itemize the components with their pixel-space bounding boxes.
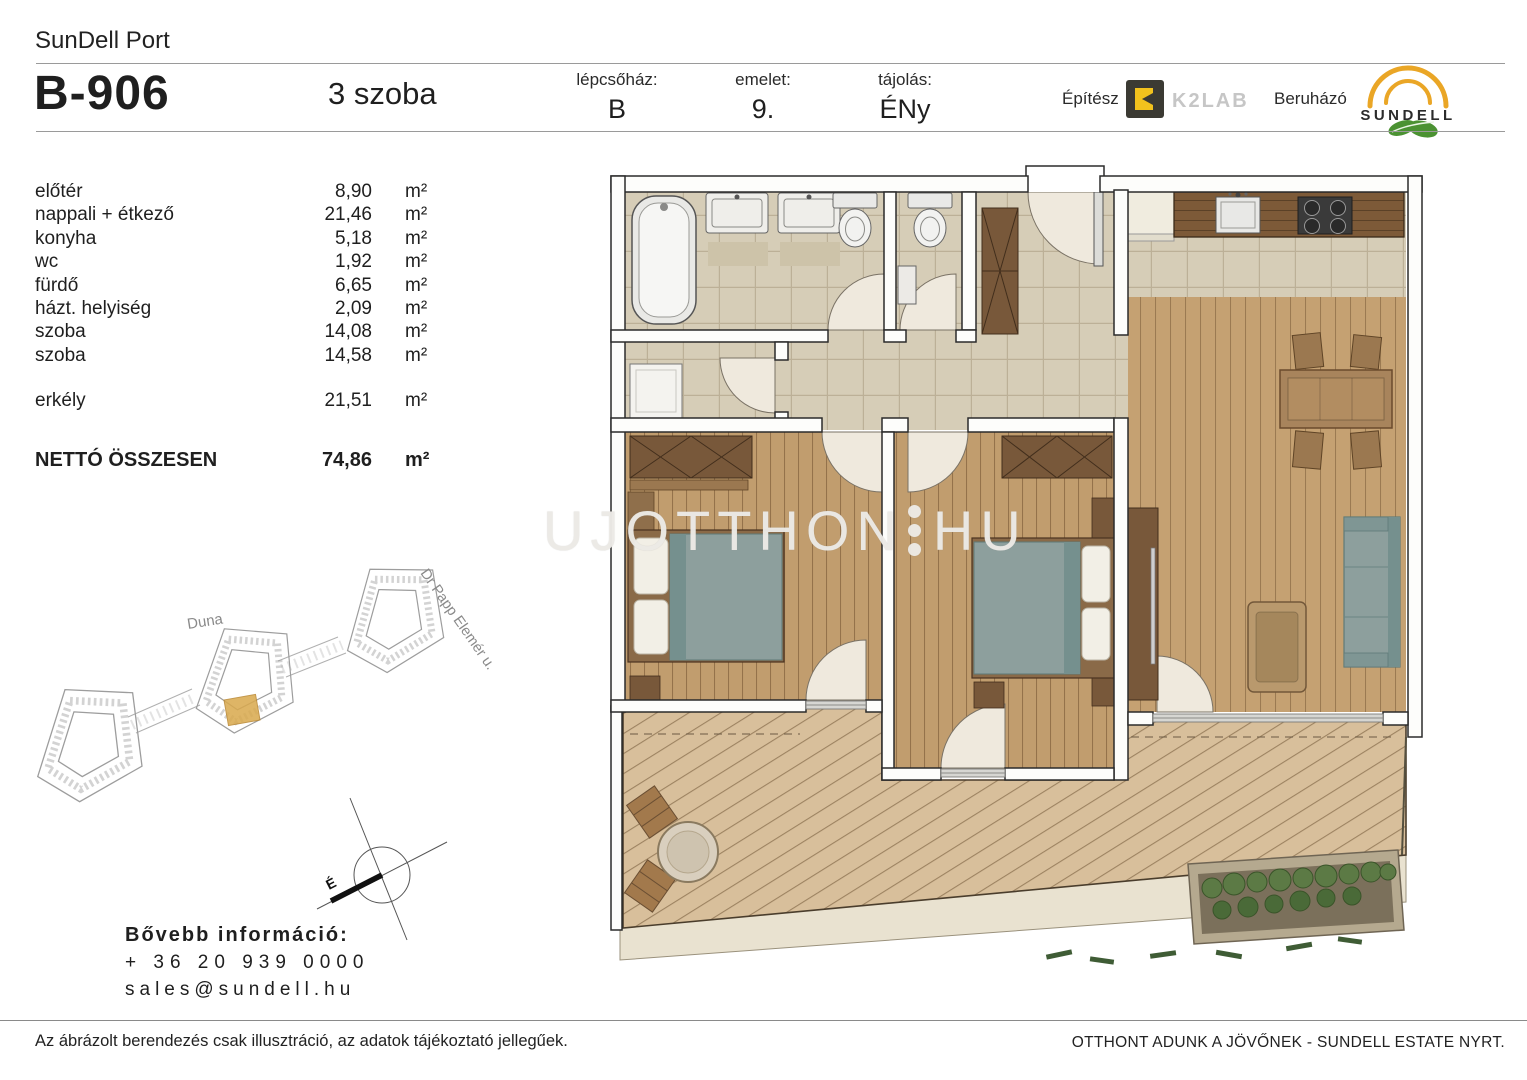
kitchen-counter [1174,192,1404,237]
kitchen-knob [1228,192,1231,195]
wall [884,192,896,330]
burner [1331,201,1346,216]
balcony-table-top [667,831,709,873]
bed-blanket-fold [670,534,686,660]
contact-title: Bővebb információ: [125,922,369,949]
flyer-page: SunDell Port B-906 3 szoba lépcsőház: B … [0,0,1527,1080]
sofa-armrest [1344,517,1388,531]
wall [611,700,806,712]
wall [611,176,625,712]
bathtub-inner [639,203,689,317]
wall [611,330,828,342]
wall [882,432,894,780]
wall [882,768,941,780]
sink-faucet [735,195,740,200]
wall [611,176,1028,192]
pillow [634,538,668,594]
wall [1408,176,1422,737]
wall [882,418,908,432]
entry-wardrobe [982,208,1018,334]
dining-chair [1292,333,1323,370]
entrance-alcove [1026,166,1104,192]
dining-chair [1350,431,1381,469]
entrance-door-leaf [1094,192,1103,266]
footer-slogan: OTTHONT ADUNK A JÖVŐNEK - SUNDELL ESTATE… [1072,1034,1505,1052]
burner [1305,219,1320,234]
sink-faucet [807,195,812,200]
bath-mat [780,242,840,266]
bath-mat [708,242,768,266]
wall [962,192,976,330]
pillow [1082,608,1110,660]
wall [775,342,788,360]
wall [866,700,882,712]
sofa-back [1388,517,1400,667]
wall [611,706,622,930]
sofa-armrest [1344,653,1388,667]
kitchen-cabinet-lip [1128,234,1174,241]
pillow [634,600,668,654]
wardrobe-shelf [630,480,748,490]
contact-email: sales@sundell.hu [125,976,369,1003]
divider [0,1020,1527,1021]
burner [1305,201,1320,216]
wall [1383,712,1408,725]
bed-blanket-fold [1064,542,1080,674]
wall [1005,768,1114,780]
kitchen-cabinet [1128,192,1174,234]
wall [1114,190,1128,335]
dining-chair [1350,335,1381,370]
nightstand [974,682,1004,708]
wall [1100,176,1422,192]
wardrobe [1002,436,1112,478]
wardrobe [630,436,752,478]
floor-plan [0,0,1527,1080]
wall [884,330,906,342]
pillow [1082,546,1110,602]
burner [1331,219,1346,234]
washing-machine [630,364,682,418]
bathtub-faucet [660,203,668,211]
kitchen-knob [1244,192,1247,195]
kitchen-faucet [1236,193,1241,198]
toilet-tank [908,193,952,208]
wall [968,418,1114,432]
bed-blanket [670,534,782,660]
kitchen [1128,192,1404,241]
toilet-tank [833,193,877,208]
coffee-table-top [1256,612,1298,682]
footer-disclaimer: Az ábrázolt berendezés csak illusztráció… [35,1032,568,1051]
wall [1128,712,1153,725]
wall [1114,418,1128,780]
dining-chair [1292,431,1323,469]
hand-sink [898,266,916,304]
wall [956,330,976,342]
contact-phone: + 36 20 939 0000 [125,949,369,976]
wall [611,418,822,432]
dining-table-top [1288,378,1384,420]
tv [1151,548,1155,664]
contact-block: Bővebb információ: + 36 20 939 0000 sale… [125,922,369,1003]
